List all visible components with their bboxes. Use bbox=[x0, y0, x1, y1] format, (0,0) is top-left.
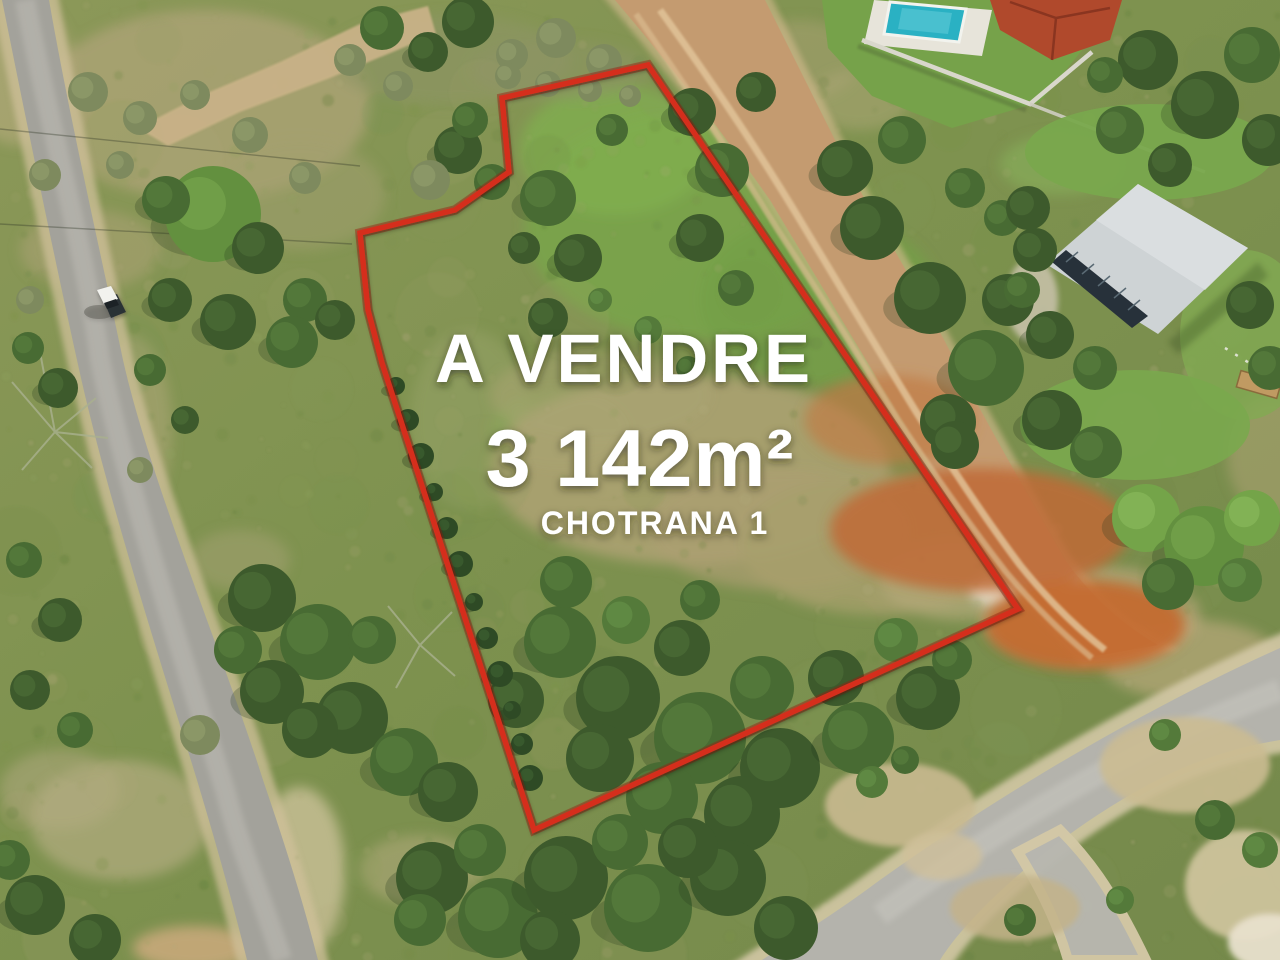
tree-canopy-highlight bbox=[41, 373, 63, 395]
tree-canopy-highlight bbox=[721, 274, 741, 294]
warehouse-lawn bbox=[1025, 104, 1275, 200]
tree-canopy-highlight bbox=[822, 146, 853, 177]
tree-canopy-highlight bbox=[287, 708, 318, 739]
tree-canopy-highlight bbox=[662, 703, 713, 754]
tree-canopy-highlight bbox=[845, 203, 880, 238]
tree-canopy-highlight bbox=[73, 920, 102, 949]
tree-canopy-highlight bbox=[32, 163, 50, 181]
tree-canopy-highlight bbox=[597, 820, 628, 851]
tree-canopy-highlight bbox=[572, 732, 609, 769]
tree-canopy-highlight bbox=[739, 77, 761, 99]
tree-canopy-highlight bbox=[1074, 432, 1103, 461]
tree-canopy-highlight bbox=[352, 622, 378, 648]
tree-canopy-highlight bbox=[531, 846, 577, 892]
tree-canopy-highlight bbox=[882, 122, 908, 148]
tree-canopy-highlight bbox=[42, 603, 66, 627]
tree-canopy-highlight bbox=[1030, 317, 1056, 343]
tree-canopy-highlight bbox=[878, 623, 902, 647]
tree-canopy-highlight bbox=[497, 66, 511, 80]
tree-canopy-highlight bbox=[10, 882, 43, 915]
tree-canopy-highlight bbox=[611, 874, 659, 922]
tree-canopy-highlight bbox=[813, 656, 844, 687]
tree-canopy-highlight bbox=[1010, 191, 1034, 215]
tree-canopy-highlight bbox=[60, 716, 80, 736]
tree-canopy-highlight bbox=[710, 785, 752, 827]
tree-canopy-highlight bbox=[152, 283, 176, 307]
tree-canopy-highlight bbox=[1077, 351, 1101, 375]
tree-canopy-highlight bbox=[1229, 496, 1260, 527]
aerial-photo-canvas: A VENDRE 3 142m² CHOTRANA 1 bbox=[0, 0, 1280, 960]
tree-canopy-highlight bbox=[621, 88, 633, 100]
tree-canopy-highlight bbox=[683, 585, 705, 607]
tree-canopy-highlight bbox=[235, 121, 255, 141]
tree-canopy-highlight bbox=[364, 11, 388, 35]
tree-canopy-highlight bbox=[455, 106, 475, 126]
tree-canopy-highlight bbox=[1230, 287, 1256, 313]
conifer-highlight bbox=[491, 665, 504, 678]
tree-canopy-highlight bbox=[1171, 515, 1215, 559]
location-text: CHOTRANA 1 bbox=[541, 505, 770, 541]
tree-canopy-highlight bbox=[446, 2, 475, 31]
tree-canopy-highlight bbox=[948, 173, 970, 195]
tree-canopy-highlight bbox=[423, 769, 456, 802]
tree-canopy-highlight bbox=[1108, 889, 1123, 904]
tree-canopy-highlight bbox=[318, 305, 340, 327]
tree-canopy-highlight bbox=[287, 283, 311, 307]
tree-canopy-highlight bbox=[1146, 564, 1175, 593]
tree-canopy-highlight bbox=[146, 182, 172, 208]
tree-canopy-highlight bbox=[583, 666, 629, 712]
tree-canopy-highlight bbox=[1017, 233, 1041, 257]
tree-canopy-highlight bbox=[18, 289, 33, 304]
tree-canopy-highlight bbox=[954, 339, 996, 381]
tree-canopy-highlight bbox=[458, 830, 487, 859]
tree-canopy-highlight bbox=[599, 118, 617, 136]
tree-canopy-highlight bbox=[558, 240, 584, 266]
tree-canopy-highlight bbox=[286, 613, 328, 655]
tree-canopy-highlight bbox=[1007, 908, 1025, 926]
tree-canopy-highlight bbox=[589, 48, 609, 68]
tree-canopy-highlight bbox=[987, 204, 1007, 224]
tree-canopy-highlight bbox=[292, 166, 310, 184]
tree-canopy-highlight bbox=[1229, 33, 1260, 64]
tree-canopy-highlight bbox=[413, 165, 435, 187]
tree-canopy-highlight bbox=[900, 270, 940, 310]
tree-canopy-highlight bbox=[1198, 805, 1220, 827]
tree-canopy-highlight bbox=[935, 427, 961, 453]
tree-canopy-highlight bbox=[511, 236, 529, 254]
sale-title-text: A VENDRE bbox=[435, 320, 813, 397]
tree-canopy-highlight bbox=[270, 322, 299, 351]
conifer-highlight bbox=[479, 630, 490, 641]
tree-canopy-highlight bbox=[606, 602, 632, 628]
tree-canopy-highlight bbox=[663, 825, 696, 858]
tree-canopy-highlight bbox=[71, 77, 93, 99]
tree-canopy-highlight bbox=[901, 673, 936, 708]
tree-canopy-highlight bbox=[680, 220, 706, 246]
tree-canopy-highlight bbox=[218, 632, 244, 658]
tree-canopy-highlight bbox=[9, 546, 29, 566]
tree-canopy-highlight bbox=[376, 736, 413, 773]
tree-canopy-highlight bbox=[402, 850, 442, 890]
tree-canopy-highlight bbox=[525, 917, 558, 950]
tree-canopy-highlight bbox=[1100, 112, 1126, 138]
tree-canopy-highlight bbox=[1245, 836, 1265, 856]
conifer-highlight bbox=[505, 703, 514, 712]
tree-canopy-highlight bbox=[499, 43, 517, 61]
tree-canopy-highlight bbox=[828, 710, 868, 750]
tree-canopy-highlight bbox=[108, 154, 123, 169]
tree-canopy-highlight bbox=[137, 358, 155, 376]
conifer-highlight bbox=[467, 595, 476, 604]
tree-canopy-highlight bbox=[1007, 276, 1027, 296]
tree-canopy-highlight bbox=[183, 83, 200, 100]
tree-canopy-highlight bbox=[126, 105, 145, 124]
tree-canopy-highlight bbox=[1118, 492, 1155, 529]
tree-canopy-highlight bbox=[1222, 563, 1246, 587]
tree-canopy-highlight bbox=[893, 749, 908, 764]
tree-canopy-highlight bbox=[590, 291, 603, 304]
tree-canopy-highlight bbox=[1027, 397, 1060, 430]
conifer-highlight bbox=[514, 736, 525, 747]
tree-canopy-highlight bbox=[205, 300, 236, 331]
tree-canopy-highlight bbox=[411, 37, 433, 59]
tree-canopy-highlight bbox=[183, 720, 205, 742]
tree-canopy-highlight bbox=[386, 74, 403, 91]
tree-canopy-highlight bbox=[525, 176, 556, 207]
tree-canopy-highlight bbox=[337, 48, 355, 66]
tree-canopy-highlight bbox=[539, 23, 561, 45]
aerial-photo: A VENDRE 3 142m² CHOTRANA 1 bbox=[0, 0, 1280, 960]
tree-canopy-highlight bbox=[1152, 723, 1170, 741]
tree-canopy-highlight bbox=[245, 667, 280, 702]
tree-canopy-highlight bbox=[747, 737, 791, 781]
tree-canopy-highlight bbox=[15, 336, 33, 354]
tree-canopy-highlight bbox=[398, 900, 427, 929]
area-text: 3 142m² bbox=[486, 414, 795, 504]
tree-canopy-highlight bbox=[1252, 351, 1276, 375]
tree-canopy-highlight bbox=[544, 562, 573, 591]
tree-canopy-highlight bbox=[530, 614, 570, 654]
tree-canopy-highlight bbox=[759, 903, 794, 938]
tree-canopy-highlight bbox=[659, 626, 690, 657]
tree-canopy-highlight bbox=[438, 132, 464, 158]
tree-canopy-highlight bbox=[234, 572, 271, 609]
tree-canopy-highlight bbox=[465, 887, 509, 931]
tree-canopy-highlight bbox=[173, 409, 188, 424]
tree-canopy-highlight bbox=[1177, 79, 1214, 116]
tree-canopy-highlight bbox=[1090, 61, 1110, 81]
tree-canopy-highlight bbox=[1246, 120, 1275, 149]
tree-canopy-highlight bbox=[859, 770, 877, 788]
tree-canopy-highlight bbox=[1123, 37, 1156, 70]
tree-canopy-highlight bbox=[735, 663, 770, 698]
tree-canopy-highlight bbox=[236, 228, 265, 257]
tree-canopy-highlight bbox=[129, 460, 143, 474]
tree-canopy-highlight bbox=[1152, 148, 1176, 172]
tree-canopy-highlight bbox=[13, 675, 35, 697]
